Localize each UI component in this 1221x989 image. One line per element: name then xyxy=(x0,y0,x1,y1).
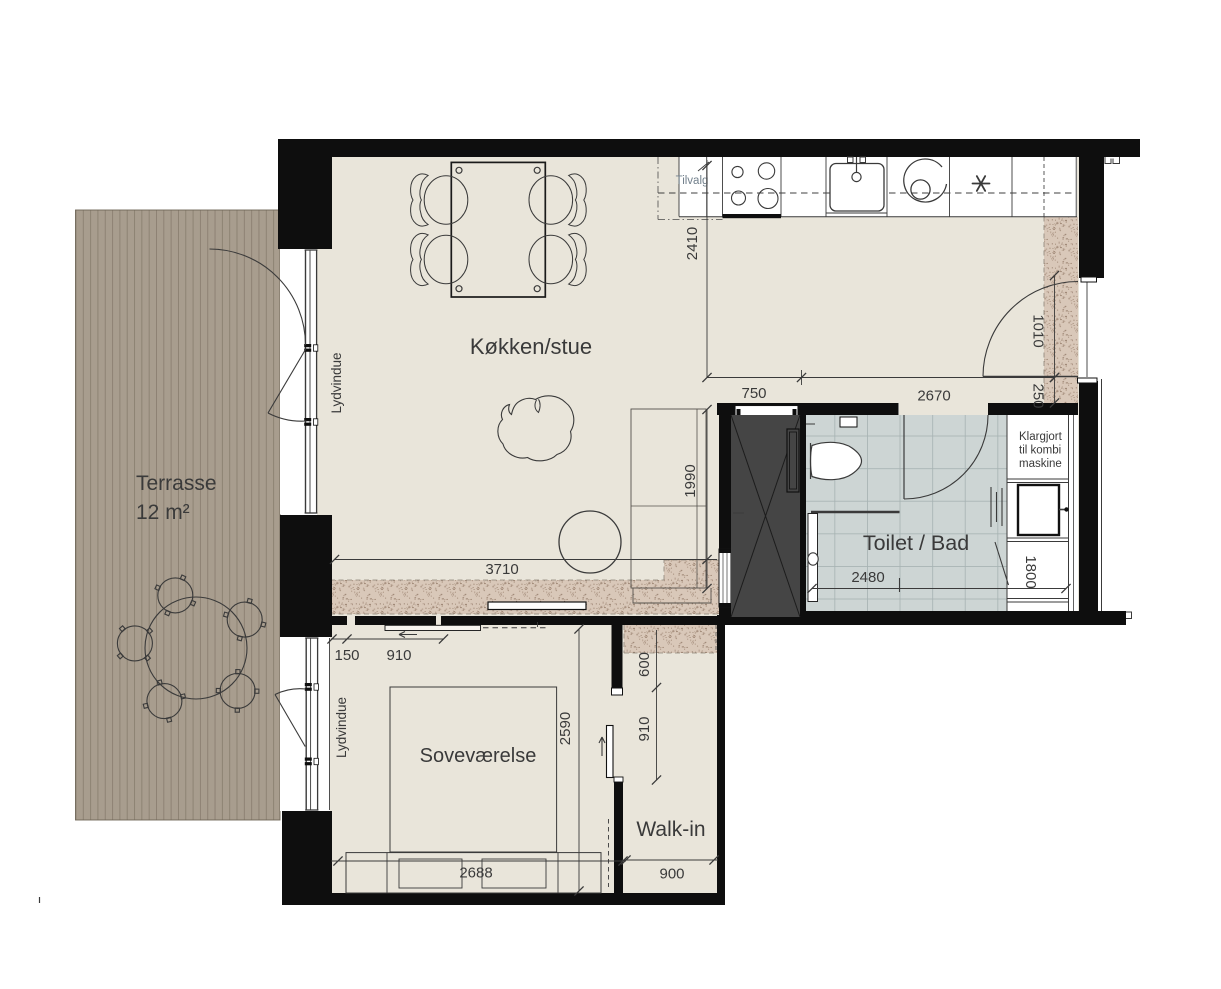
svg-text:900: 900 xyxy=(659,866,684,883)
svg-text:Køkken/stue: Køkken/stue xyxy=(470,334,592,359)
svg-text:2670: 2670 xyxy=(917,388,950,405)
svg-text:Walk-in: Walk-in xyxy=(636,818,705,841)
svg-text:Tilvalg: Tilvalg xyxy=(676,175,709,187)
svg-text:1010: 1010 xyxy=(1030,314,1047,347)
svg-text:12 m²: 12 m² xyxy=(136,501,190,524)
svg-text:2410: 2410 xyxy=(684,227,701,260)
svg-text:2480: 2480 xyxy=(851,569,884,586)
svg-text:til kombi: til kombi xyxy=(1019,445,1061,457)
svg-text:910: 910 xyxy=(636,716,653,741)
svg-text:150: 150 xyxy=(334,647,359,664)
svg-text:250: 250 xyxy=(1030,383,1047,408)
svg-text:600: 600 xyxy=(636,652,653,677)
svg-text:1990: 1990 xyxy=(682,464,699,497)
svg-text:910: 910 xyxy=(386,647,411,664)
svg-text:Terrasse: Terrasse xyxy=(136,472,217,495)
svg-text:Lydvindue: Lydvindue xyxy=(334,697,349,758)
svg-text:3710: 3710 xyxy=(485,561,518,578)
svg-text:1800: 1800 xyxy=(1022,555,1039,588)
svg-text:Toilet / Bad: Toilet / Bad xyxy=(863,531,969,555)
svg-text:750: 750 xyxy=(741,385,766,402)
svg-text:2688: 2688 xyxy=(459,865,492,882)
svg-text:maskine: maskine xyxy=(1019,458,1062,470)
svg-text:Soveværelse: Soveværelse xyxy=(420,745,537,767)
svg-text:Lydvindue: Lydvindue xyxy=(329,352,344,413)
svg-text:Klargjort: Klargjort xyxy=(1019,431,1063,443)
svg-text:2590: 2590 xyxy=(557,712,574,745)
